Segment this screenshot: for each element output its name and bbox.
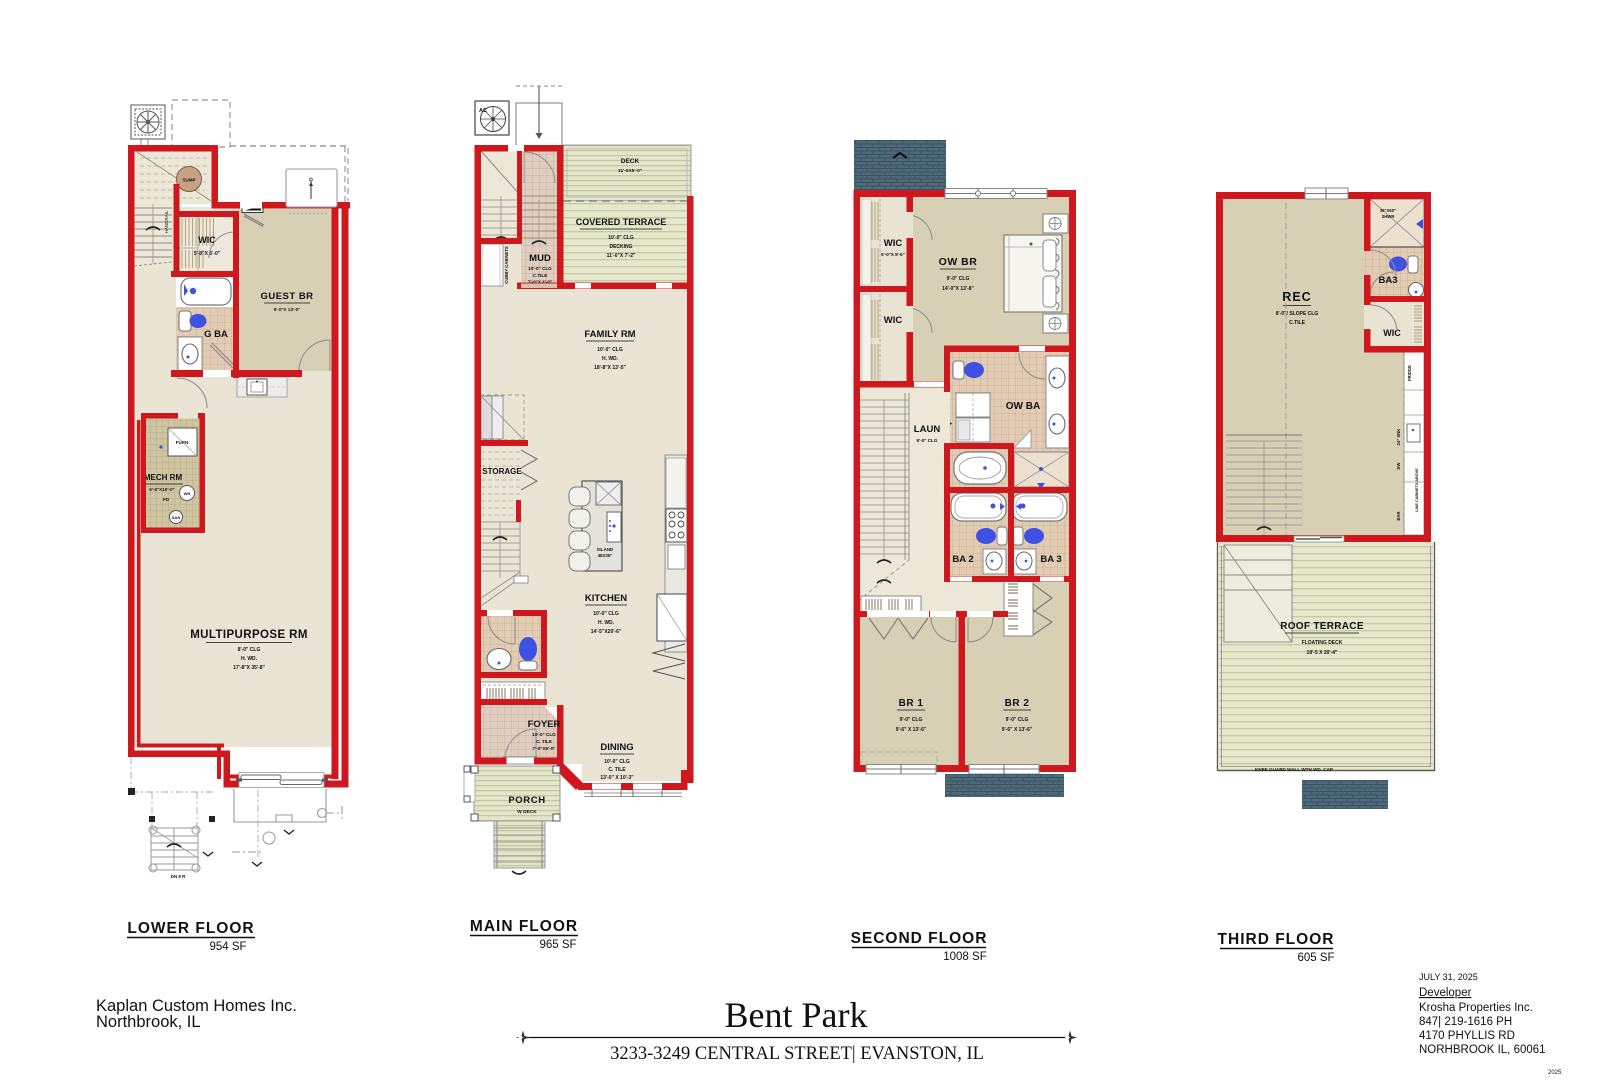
svg-text:Northbrook, IL: Northbrook, IL [96, 1013, 201, 1031]
svg-text:9'-0" CLG: 9'-0" CLG [947, 276, 970, 282]
svg-text:FOYER: FOYER [528, 719, 561, 730]
svg-text:10'-0" CLG: 10'-0" CLG [593, 611, 619, 617]
svg-text:C. TILE: C. TILE [608, 767, 626, 773]
svg-text:MUD: MUD [529, 253, 551, 264]
svg-text:C. TILE: C. TILE [536, 739, 552, 744]
svg-text:BA 2: BA 2 [952, 554, 973, 565]
svg-text:REC: REC [1282, 290, 1311, 304]
svg-text:48X36": 48X36" [598, 553, 613, 558]
svg-text:HANDRAIL: HANDRAIL [164, 210, 169, 233]
svg-text:KNEE GUARD WALL WTH WD. CAP: KNEE GUARD WALL WTH WD. CAP [1255, 767, 1333, 772]
svg-text:THIRD FLOOR: THIRD FLOOR [1218, 931, 1335, 948]
svg-text:H. WD.: H. WD. [602, 356, 619, 362]
svg-text:WIC: WIC [884, 315, 903, 326]
svg-text:18'-8"X 13'-5": 18'-8"X 13'-5" [594, 365, 626, 371]
svg-text:WIC: WIC [1383, 328, 1401, 338]
svg-text:11'-0X5'-0": 11'-0X5'-0" [618, 168, 642, 174]
svg-text:9'-6" X 13'-6": 9'-6" X 13'-6" [1002, 727, 1033, 733]
svg-text:LOWER FLOOR: LOWER FLOOR [127, 920, 254, 937]
svg-text:MECH RM: MECH RM [144, 473, 183, 482]
svg-text:24" SNK: 24" SNK [1396, 429, 1401, 446]
svg-text:BA3: BA3 [1378, 275, 1397, 286]
svg-text:9'-6" X 13'-6": 9'-6" X 13'-6" [896, 727, 927, 733]
svg-text:605 SF: 605 SF [1297, 952, 1334, 964]
svg-text:4170 PHYLLIS RD: 4170 PHYLLIS RD [1419, 1030, 1515, 1042]
svg-text:13'-0" X 10'-3": 13'-0" X 10'-3" [600, 775, 634, 781]
svg-text:954 SF: 954 SF [209, 941, 246, 953]
svg-text:FRIDGE: FRIDGE [1407, 365, 1412, 381]
svg-text:18'-5 X 20'-4": 18'-5 X 20'-4" [1307, 650, 1339, 656]
svg-text:ISLAND: ISLAND [597, 547, 613, 552]
svg-text:9'-0" CLG: 9'-0" CLG [1006, 717, 1029, 723]
svg-text:10'-0" CLG: 10'-0" CLG [604, 759, 630, 765]
svg-text:BR 1: BR 1 [899, 698, 924, 709]
svg-text:SHWR: SHWR [1382, 214, 1395, 219]
svg-text:14'-0"X 13'-8": 14'-0"X 13'-8" [942, 286, 974, 292]
svg-text:1008 SF: 1008 SF [943, 951, 986, 963]
svg-text:LINE CABINETS ABOVE: LINE CABINETS ABOVE [1415, 468, 1419, 512]
svg-text:FLOATING DECK: FLOATING DECK [1302, 640, 1343, 646]
svg-text:7'-0"X9'-0": 7'-0"X9'-0" [533, 746, 556, 751]
svg-text:COVERED TERRACE: COVERED TERRACE [576, 217, 667, 227]
svg-text:H. WD.: H. WD. [241, 656, 258, 662]
svg-text:BA 3: BA 3 [1040, 554, 1061, 565]
svg-text:GUEST BR: GUEST BR [260, 291, 313, 302]
svg-text:CUBBY CABINETS: CUBBY CABINETS [504, 246, 509, 284]
svg-text:8'-0" CLG: 8'-0" CLG [238, 647, 261, 653]
svg-text:9'-0" CLG: 9'-0" CLG [917, 438, 938, 443]
svg-text:PORCH: PORCH [508, 795, 545, 806]
svg-text:SAN: SAN [172, 515, 181, 520]
svg-text:JULY 31, 2025: JULY 31, 2025 [1419, 972, 1478, 982]
svg-text:W DECK: W DECK [517, 809, 537, 815]
svg-text:FD: FD [163, 497, 170, 502]
svg-text:BAR: BAR [1396, 511, 1401, 520]
svg-text:DN 8 R: DN 8 R [171, 874, 187, 879]
svg-text:OW BA: OW BA [1006, 401, 1040, 412]
svg-text:LAUN: LAUN [914, 424, 941, 435]
svg-text:FURN: FURN [176, 440, 189, 445]
svg-text:DINING: DINING [600, 742, 633, 753]
svg-text:DECKING: DECKING [609, 244, 632, 250]
svg-text:DECK: DECK [621, 158, 640, 165]
svg-text:17'-8"X 35'-8": 17'-8"X 35'-8" [233, 665, 265, 671]
svg-text:9'-0" CLG: 9'-0" CLG [900, 717, 923, 723]
svg-text:Bent Park: Bent Park [725, 995, 868, 1035]
svg-text:10'-0" CLG: 10'-0" CLG [528, 266, 552, 271]
svg-text:C.TILE: C.TILE [1289, 320, 1305, 326]
svg-text:STORAGE: STORAGE [482, 467, 522, 476]
svg-text:MAIN FLOOR: MAIN FLOOR [470, 918, 578, 935]
svg-text:KITCHEN: KITCHEN [585, 593, 627, 604]
svg-text:C.TILE: C.TILE [533, 273, 548, 278]
svg-text:3233-3249 CENTRAL STREET| EVAN: 3233-3249 CENTRAL STREET| EVANSTON, IL [610, 1044, 984, 1064]
svg-text:WIC: WIC [884, 238, 903, 249]
svg-text:8'-0"/ SLOPE CLG: 8'-0"/ SLOPE CLG [1276, 311, 1319, 317]
svg-text:ROOF TERRACE: ROOF TERRACE [1280, 621, 1364, 632]
svg-text:10'-0" CLG: 10'-0" CLG [532, 732, 556, 737]
svg-text:OW BR: OW BR [939, 256, 978, 268]
svg-text:965 SF: 965 SF [539, 939, 576, 951]
svg-text:847| 219-1616 PH: 847| 219-1616 PH [1419, 1016, 1512, 1028]
svg-text:SUMP: SUMP [182, 178, 195, 183]
svg-text:5'-0"X 5'-0": 5'-0"X 5'-0" [194, 251, 221, 257]
svg-text:10'-0" CLG: 10'-0" CLG [608, 235, 634, 241]
svg-text:36"X60": 36"X60" [1380, 208, 1396, 213]
svg-text:AC: AC [479, 108, 487, 114]
svg-text:Developer: Developer [1419, 987, 1472, 999]
svg-text:G BA: G BA [204, 329, 228, 340]
svg-text:DW: DW [1396, 462, 1401, 469]
svg-text:9'-0"X 13'-0": 9'-0"X 13'-0" [274, 307, 301, 312]
svg-text:5'-0"X 8'-6": 5'-0"X 8'-6" [881, 252, 905, 257]
svg-text:FAMILY RM: FAMILY RM [584, 329, 635, 340]
svg-text:Krosha Properties Inc.: Krosha Properties Inc. [1419, 1002, 1533, 1014]
svg-text:10'-0" CLG: 10'-0" CLG [597, 347, 623, 353]
svg-text:14'-5"X20'-6": 14'-5"X20'-6" [591, 629, 622, 635]
svg-text:H. WD.: H. WD. [598, 620, 615, 626]
svg-text:5'-5"X10'-0": 5'-5"X10'-0" [149, 487, 174, 492]
svg-text:WH: WH [184, 491, 191, 496]
svg-text:11'-0"X 7'-2": 11'-0"X 7'-2" [607, 253, 636, 259]
svg-text:SECOND FLOOR: SECOND FLOOR [851, 930, 988, 947]
svg-text:2025: 2025 [1548, 1070, 1562, 1076]
svg-text:MULTIPURPOSE RM: MULTIPURPOSE RM [190, 629, 308, 641]
svg-text:NORHBROOK IL, 60061: NORHBROOK IL, 60061 [1419, 1044, 1546, 1056]
svg-text:BR 2: BR 2 [1005, 698, 1030, 709]
